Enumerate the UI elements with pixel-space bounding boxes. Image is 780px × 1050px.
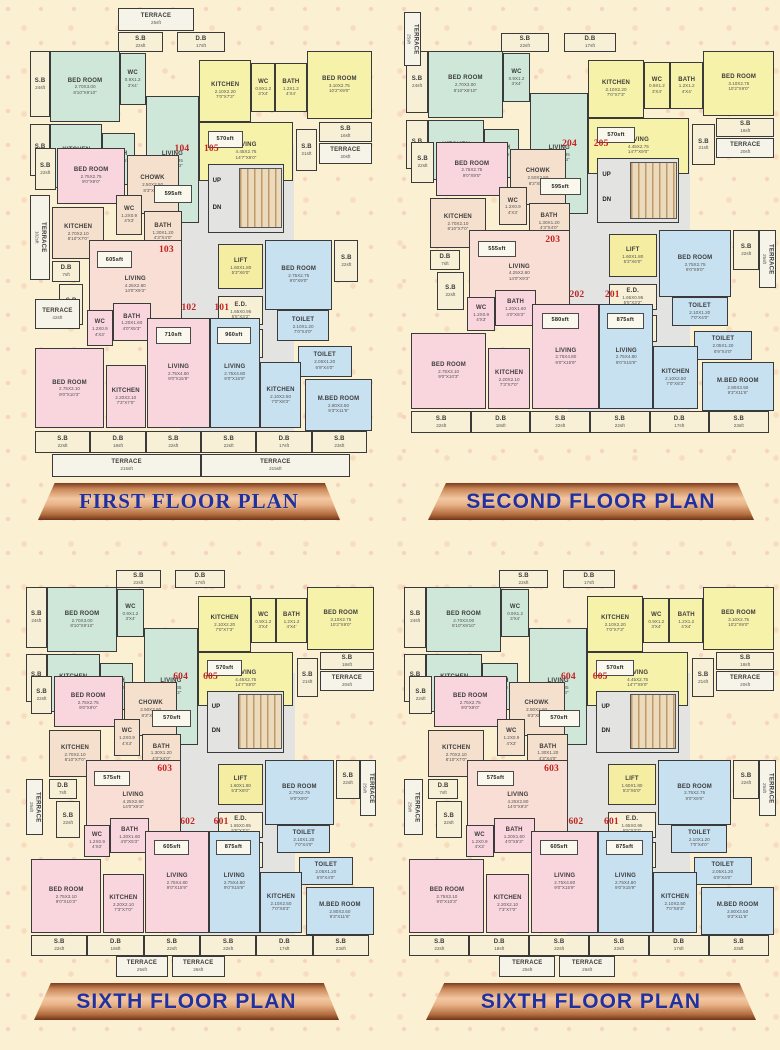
room-bedroom_e: BED ROOM2.75X3.109'0"X10'3"	[409, 859, 484, 932]
room-db_top: D.B17sft	[563, 570, 615, 589]
room-sb_b1: S.B22sft	[35, 431, 90, 454]
room-u_d: 602	[175, 815, 200, 831]
room-terrace_r1: TERRACE20sft	[320, 671, 375, 690]
room-bedroom_a: BED ROOM2.70X3.008'10"X9'10"	[50, 51, 119, 122]
room-terrace_s1: TERRACE25sft	[499, 956, 555, 976]
room-wc_d: WC1.2X0.94'X3'	[87, 310, 113, 345]
stair-treads	[239, 168, 282, 228]
stair-treads	[238, 694, 282, 749]
room-sb_l1: S.B24sft	[30, 51, 51, 117]
stairs-label-dn: DN	[601, 728, 610, 735]
room-terrace_42: TERRACE42sft	[35, 299, 80, 330]
banner-label: FIRST FLOOR PLAN	[79, 489, 299, 514]
room-bedroom_c: BED ROOM2.75X2.759'0"X9'0"	[54, 676, 123, 728]
room-kitchen_d: KITCHEN2.20X2.107'3"X7'0"	[106, 365, 146, 429]
second-floor-plan: S.B22sftD.B17sftS.B24sftBED ROOM2.70X3.0…	[404, 8, 776, 456]
room-db_l: D.B7sft	[430, 250, 460, 270]
room-sb_m: S.B22sft	[437, 272, 463, 310]
room-u_a: 204	[557, 136, 583, 152]
room-kitchen_e: KITCHEN2.10X2.507'0"X8'3"	[653, 346, 698, 409]
room-kitchen_b: KITCHEN2.10X2.207'0"X7'3"	[199, 60, 251, 121]
room-u_c: 603	[539, 762, 565, 778]
room-m_bedroom: M.BED ROOM2.80X3.509'3"X11'6"	[701, 887, 774, 935]
room-area_d: 605sft	[540, 840, 577, 856]
room-u_c: 603	[152, 762, 177, 778]
room-area_e: 875sft	[607, 313, 644, 329]
room-sb_l3: S.B22sft	[31, 676, 52, 715]
room-u_d: 202	[564, 287, 590, 303]
room-bath_d: BATH1.20X1.604'0"X5'3"	[494, 818, 535, 853]
room-bath_d: BATH1.20X1.604'0"X5'3"	[110, 818, 149, 853]
room-bedroom_b: BED ROOM3.10X2.7510'2"X9'0"	[307, 587, 374, 650]
banner-label: SIXTH FLOOR PLAN	[76, 990, 296, 1014]
room-terrace_b1: TERRACE215sft	[52, 454, 201, 476]
stairs-label-up: UP	[601, 704, 609, 711]
room-db_top: D.B17sft	[175, 570, 224, 589]
room-area_a: 595sft	[540, 178, 581, 195]
room-sb_b3: S.B22sft	[201, 431, 256, 454]
room-u_e: 601	[209, 815, 234, 831]
room-bedroom_a: BED ROOM2.70X3.008'10"X9'10"	[47, 587, 117, 652]
room-sb_r3: S.B22sft	[334, 240, 358, 282]
room-sb_r2: S.B21sft	[692, 124, 714, 164]
stair-treads	[630, 162, 676, 219]
room-db_b1: D.B18sft	[87, 935, 143, 956]
room-area_c: 605sft	[97, 251, 132, 268]
room-u_e: 101	[210, 300, 234, 317]
room-db_b2: D.B17sft	[256, 935, 312, 956]
room-sb_r3: S.B22sft	[336, 760, 361, 799]
room-u_c: 203	[540, 232, 566, 248]
room-terrace_b2: TERRACE215sft	[201, 454, 350, 476]
room-terrace_vtl: TERRACE25sft	[404, 12, 421, 66]
room-m_bedroom: M.BED ROOM2.80X3.509'3"X11'6"	[306, 887, 375, 935]
room-area_a: 570sft	[539, 710, 580, 726]
room-bedroom_b: BED ROOM3.10X2.7510'2"X9'0"	[703, 587, 774, 650]
room-sb_r1: S.B18sft	[716, 652, 774, 671]
room-sb_b2: S.B22sft	[529, 935, 589, 956]
room-wc_c: WC1.2X0.94'X3'	[499, 187, 527, 225]
room-toilet_2: TOILET2.05X1.206'9"X4'0"	[694, 331, 752, 360]
room-db_l: D.B7sft	[49, 779, 77, 798]
room-u_e: 201	[599, 287, 625, 303]
stairs-label-dn: DN	[213, 205, 222, 212]
room-kitchen_d: KITCHEN2.20X2.107'3"X7'0"	[488, 348, 531, 408]
room-bath_d: BATH1.20X1.604'0"X5'3"	[495, 290, 536, 326]
room-sb_b1: S.B22sft	[31, 935, 87, 956]
room-sb_r1: S.B16sft	[319, 122, 373, 142]
room-wc_d: WC1.2X0.94'X3'	[84, 825, 110, 857]
room-bedroom_d: BED ROOM2.75X2.759'0"X9'0"	[658, 760, 731, 825]
room-wc_d: WC1.2X0.94'X3'	[466, 825, 494, 857]
room-toilet_2: TOILET2.05X1.206'9"X4'0"	[298, 346, 352, 377]
room-db_b1: D.B18sft	[90, 431, 145, 454]
room-sb_top: S.B22sft	[116, 570, 162, 589]
room-sb_b2: S.B22sft	[146, 431, 201, 454]
room-bedroom_d: BED ROOM2.75X2.759'0"X9'0"	[265, 760, 334, 825]
room-m_bedroom: M.BED ROOM2.80X3.509'3"X11'6"	[305, 379, 372, 431]
room-sb_b3: S.B22sft	[589, 935, 649, 956]
room-db_l: D.B7sft	[428, 779, 458, 798]
room-bedroom_a: BED ROOM2.70X3.008'10"X9'10"	[426, 587, 501, 652]
room-wc_b: WC0.9X1.23'X4'	[251, 598, 276, 643]
room-terrace_top: TERRACE25sft	[118, 8, 194, 30]
room-kitchen_b: KITCHEN2.10X2.207'0"X7'3"	[198, 596, 251, 652]
room-wc_b: WC0.9X1.23'X4'	[251, 63, 275, 113]
room-db_top: D.B17sft	[177, 32, 225, 52]
room-toilet_1: TOILET2.10X1.207'0"X4'0"	[277, 310, 329, 341]
room-u_b: 205	[588, 136, 614, 152]
room-db_b2: D.B17sft	[649, 935, 709, 956]
room-kitchen_d: KITCHEN2.20X2.107'3"X7'0"	[103, 874, 143, 932]
stairs-label-up: UP	[213, 178, 221, 185]
room-terrace_s2: TERRACE26sft	[172, 956, 225, 976]
room-wc_a: WC0.9X1.23'X4'	[503, 53, 531, 102]
room-db_b2: D.B17sft	[650, 411, 710, 433]
room-area_e: 960sft	[217, 327, 252, 344]
banner-sixth-floor-left: SIXTH FLOOR PLAN	[34, 983, 339, 1020]
room-toilet_1: TOILET2.10X1.207'0"X4'0"	[671, 825, 727, 853]
room-sb_r1: S.B18sft	[320, 652, 375, 671]
room-sb_l3: S.B22sft	[35, 148, 56, 190]
room-db_b2: D.B17sft	[256, 431, 311, 454]
room-area_c: 575sft	[477, 771, 514, 787]
room-sb_r3: S.B22sft	[733, 760, 759, 799]
room-db_b1: D.B18sft	[469, 935, 529, 956]
room-toilet_1: TOILET2.10X1.207'0"X4'0"	[277, 825, 330, 853]
room-stairs: UPDN	[207, 691, 284, 754]
room-u_a: 104	[170, 141, 194, 158]
room-wc_c: WC1.2X0.94'X3'	[116, 195, 142, 235]
room-terrace_vr: TERRACE25sft	[759, 230, 776, 288]
room-bedroom_c: BED ROOM2.75X2.759'0"X9'0"	[57, 148, 124, 205]
banner-second-floor: SECOND FLOOR PLAN	[428, 483, 754, 520]
room-bedroom_a: BED ROOM2.70X3.008'10"X9'10"	[428, 51, 502, 118]
room-wc_c: WC1.2X0.94'X3'	[114, 719, 140, 756]
room-sb_b1: S.B22sft	[411, 411, 471, 433]
sixth-floor-plan-right: S.B22sftD.B17sftS.B24sftBED ROOM2.70X3.0…	[402, 546, 776, 978]
room-kitchen_b: KITCHEN2.10X2.207'0"X7'3"	[588, 60, 644, 118]
room-sb_top: S.B22sft	[499, 570, 548, 589]
room-sb_r2: S.B21sft	[692, 658, 714, 697]
room-sb_l1: S.B24sft	[404, 587, 426, 647]
room-bedroom_d: BED ROOM2.75X2.759'0"X9'0"	[659, 230, 732, 297]
room-kitchen_d: KITCHEN2.20X2.107'3"X7'0"	[486, 874, 529, 932]
room-terrace_r1: TERRACE20sft	[716, 671, 774, 690]
room-bedroom_c: BED ROOM2.75X2.759'0"X9'0"	[436, 142, 509, 196]
room-bath_d: BATH1.20X1.604'0"X5'3"	[113, 303, 151, 341]
room-u_b: 605	[198, 670, 223, 686]
room-sb_m: S.B22sft	[56, 801, 81, 838]
room-u_d: 102	[177, 300, 201, 317]
room-bedroom_d: BED ROOM2.75X2.759'0"X9'0"	[265, 240, 332, 311]
room-lift: LIFT1.60X1.805'3"X6'0"	[218, 764, 264, 805]
room-sb_l3: S.B22sft	[409, 676, 431, 715]
room-stairs: UPDN	[597, 158, 679, 223]
stairs-label-dn: DN	[602, 197, 611, 204]
room-area_e: 875sft	[216, 840, 251, 856]
room-wc_d: WC1.2X0.94'X3'	[467, 297, 495, 331]
stair-treads	[630, 694, 677, 749]
room-terrace_vml: TERRACE25sft	[404, 779, 423, 835]
room-wc_a: WC0.9X1.23'X4'	[117, 589, 143, 637]
room-terrace_r1: TERRACE20sft	[716, 138, 774, 158]
room-wc_b: WC0.9X1.23'X4'	[644, 62, 670, 109]
room-kitchen_e: KITCHEN2.10X2.507'0"X8'3"	[260, 872, 302, 932]
room-u_b: 605	[587, 670, 613, 686]
room-toilet_1: TOILET2.10X1.207'0"X4'0"	[672, 297, 728, 326]
room-toilet_2: TOILET2.05X1.206'9"X4'0"	[694, 857, 752, 885]
room-bath_b: BATH1.2X1.24'X4'	[669, 598, 703, 643]
room-sb_r2: S.B21sft	[297, 658, 318, 697]
room-sb_b2: S.B22sft	[530, 411, 590, 433]
sixth-floor-plan-left: S.B22sftD.B17sftS.B24sftBED ROOM2.70X3.0…	[24, 546, 376, 978]
room-area_d: 605sft	[154, 840, 189, 856]
room-u_b: 105	[199, 141, 223, 158]
room-terrace_102: TERRACE102sft	[30, 195, 51, 280]
room-bath_b: BATH1.2X1.24'X4'	[276, 598, 308, 643]
room-bedroom_e: BED ROOM2.75X3.109'0"X10'3"	[35, 348, 104, 428]
room-lift: LIFT1.60X1.805'3"X6'0"	[609, 234, 657, 277]
room-stairs: UPDN	[208, 164, 284, 232]
room-terrace_vr: TERRACE25sft	[360, 760, 376, 816]
room-lift: LIFT1.60X1.805'3"X6'0"	[608, 764, 657, 805]
room-bedroom_b: BED ROOM3.10X2.7510'2"X9'0"	[307, 51, 373, 119]
room-sb_top: S.B22sft	[501, 33, 549, 52]
room-bath_b: BATH1.2X1.24'X4'	[670, 62, 703, 109]
room-u_a: 604	[555, 670, 581, 686]
room-wc_a: WC0.9X1.23'X4'	[120, 53, 146, 105]
room-u_a: 604	[168, 670, 193, 686]
room-wc_b: WC0.9X1.23'X4'	[643, 598, 669, 643]
stairs-label-up: UP	[212, 704, 220, 711]
room-sb_b2: S.B22sft	[144, 935, 200, 956]
room-sb_b1: S.B22sft	[409, 935, 469, 956]
room-area_d: 580sft	[542, 313, 579, 329]
room-area_c: 575sft	[94, 771, 129, 787]
room-toilet_2: TOILET2.05X1.206'9"X4'0"	[299, 857, 354, 885]
room-db_b1: D.B18sft	[471, 411, 531, 433]
room-bedroom_e: BED ROOM2.75X3.109'0"X10'3"	[411, 333, 485, 409]
room-terrace_vr: TERRACE25sft	[759, 760, 776, 816]
room-bedroom_c: BED ROOM2.75X2.759'0"X9'0"	[434, 676, 507, 728]
room-sb_r3: S.B22sft	[733, 230, 759, 270]
room-db_top: D.B17sft	[564, 33, 616, 52]
room-stairs: UPDN	[596, 691, 678, 754]
room-bedroom_e: BED ROOM2.75X3.109'0"X10'3"	[31, 859, 101, 932]
room-kitchen_e: KITCHEN2.10X2.507'0"X8'3"	[260, 362, 302, 428]
room-sb_r1: S.B16sft	[716, 118, 774, 137]
room-lift: LIFT1.60X1.805'3"X6'0"	[218, 244, 263, 289]
banner-sixth-floor-right: SIXTH FLOOR PLAN	[426, 983, 756, 1020]
room-u_c: 103	[154, 242, 178, 259]
room-area_a: 595sft	[154, 185, 192, 203]
banner-label: SIXTH FLOOR PLAN	[481, 990, 701, 1014]
room-area_c: 555sft	[478, 241, 515, 257]
room-sb_b3: S.B22sft	[200, 935, 256, 956]
brochure-page: TERRACE25sftS.B22sftD.B17sftS.B24sftBED …	[0, 0, 780, 1050]
room-area_a: 570sft	[152, 710, 191, 726]
room-terrace_s1: TERRACE25sft	[116, 956, 169, 976]
room-wc_a: WC0.9X1.23'X4'	[501, 589, 529, 637]
room-terrace_vml: TERRACE25sft	[26, 779, 44, 835]
room-wc_c: WC1.2X0.94'X3'	[497, 719, 525, 756]
room-db_l: D.B7sft	[52, 261, 80, 282]
room-sb_b4: S.B23sft	[313, 935, 369, 956]
room-kitchen_b: KITCHEN2.10X2.207'0"X7'3"	[587, 596, 643, 652]
banner-label: SECOND FLOOR PLAN	[466, 490, 715, 514]
stairs-label-dn: DN	[212, 728, 221, 735]
room-sb_b3: S.B22sft	[590, 411, 650, 433]
room-sb_b4: S.B23sft	[709, 411, 769, 433]
first-floor-plan: TERRACE25sftS.B22sftD.B17sftS.B24sftBED …	[28, 6, 374, 478]
room-u_d: 602	[563, 815, 589, 831]
room-sb_l1: S.B24sft	[26, 587, 47, 647]
room-m_bedroom: M.BED ROOM2.80X3.509'3"X11'6"	[702, 362, 775, 411]
room-sb_m: S.B22sft	[436, 801, 462, 838]
room-bath_b: BATH1.2X1.24'X4'	[275, 63, 306, 113]
room-area_d: 710sft	[156, 327, 191, 344]
stairs-label-up: UP	[602, 172, 610, 179]
room-sb_top: S.B22sft	[118, 32, 163, 52]
room-sb_b4: S.B23sft	[709, 935, 769, 956]
room-terrace_s2: TERRACE26sft	[559, 956, 615, 976]
room-sb_b4: S.B23sft	[312, 431, 367, 454]
room-sb_r2: S.B21sft	[296, 129, 317, 171]
room-bedroom_b: BED ROOM3.10X2.7510'2"X9'0"	[703, 51, 774, 116]
banner-first-floor: FIRST FLOOR PLAN	[38, 483, 340, 520]
room-area_e: 875sft	[606, 840, 643, 856]
room-kitchen_e: KITCHEN2.10X2.507'0"X8'3"	[653, 872, 698, 932]
room-sb_l3: S.B22sft	[411, 142, 433, 182]
room-terrace_r1: TERRACE20sft	[319, 143, 373, 164]
room-u_e: 601	[598, 815, 624, 831]
